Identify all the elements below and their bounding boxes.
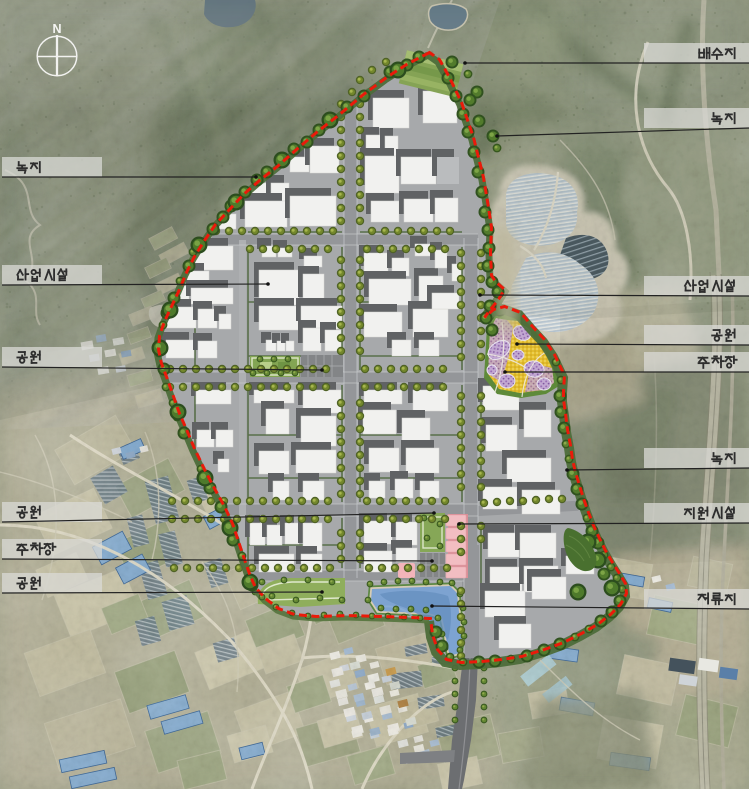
svg-text:N: N: [52, 22, 61, 36]
